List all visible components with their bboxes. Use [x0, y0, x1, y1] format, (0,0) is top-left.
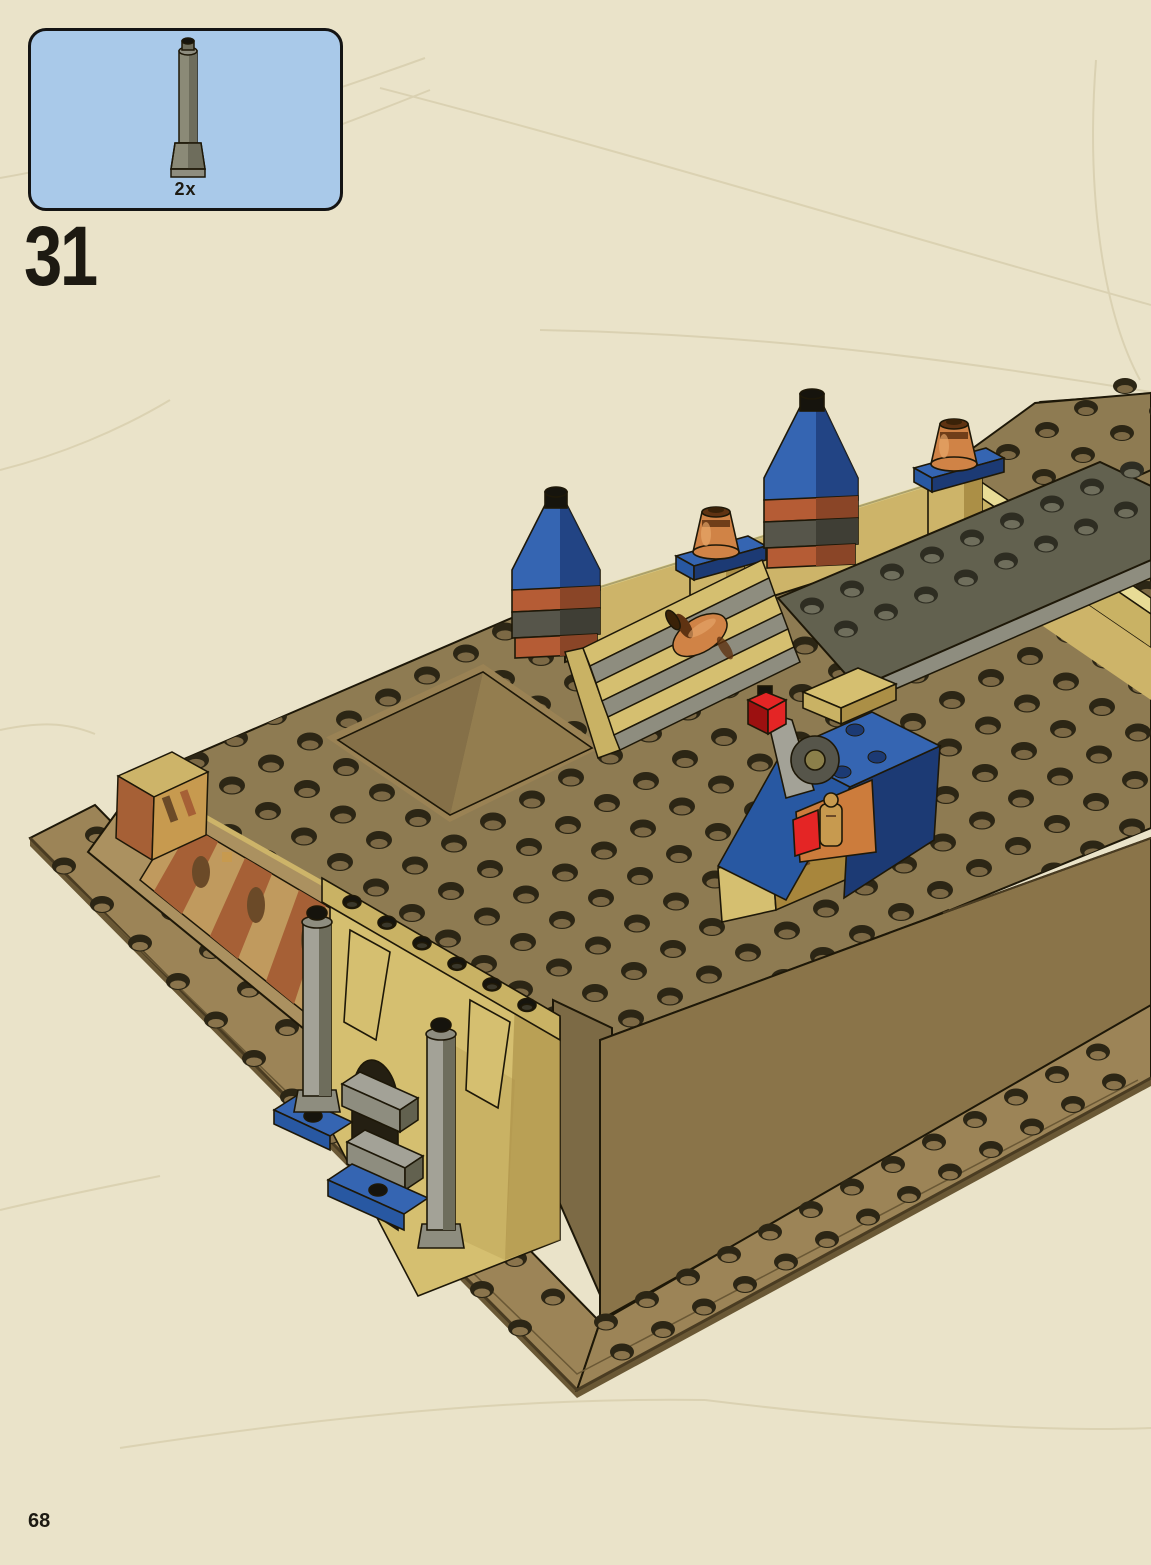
pillar-piece-illustration — [31, 37, 340, 185]
gold-statue — [820, 793, 842, 846]
parts-callout: 2x — [28, 28, 343, 211]
model-illustration — [0, 0, 1151, 1565]
obelisk-left — [512, 487, 600, 658]
page-number: 68 — [28, 1510, 50, 1533]
step-number: 31 — [24, 214, 96, 298]
instruction-page: 2x 31 68 — [0, 0, 1151, 1565]
obelisk-middle — [764, 389, 858, 568]
